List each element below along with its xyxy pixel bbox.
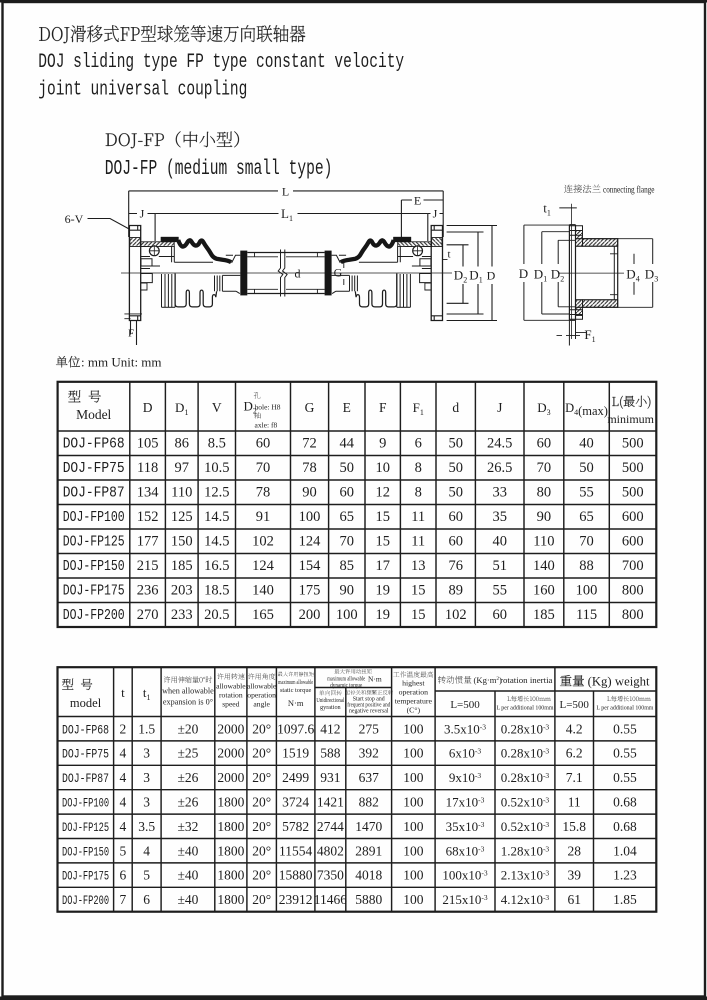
svg-text:20°: 20° xyxy=(252,795,271,810)
svg-text:20°: 20° xyxy=(252,770,271,785)
svg-text:V: V xyxy=(212,400,222,415)
svg-text:4.12x10-3: 4.12x10-3 xyxy=(501,892,550,907)
svg-text:1800: 1800 xyxy=(217,819,244,834)
svg-text:11554: 11554 xyxy=(279,843,312,858)
svg-text:3: 3 xyxy=(143,746,150,761)
svg-text:23912: 23912 xyxy=(279,892,313,907)
svg-text:185: 185 xyxy=(533,607,555,623)
svg-text:7.1: 7.1 xyxy=(566,770,583,785)
svg-text:134: 134 xyxy=(137,484,160,500)
svg-text:J: J xyxy=(140,207,145,221)
svg-text:negative reversal: negative reversal xyxy=(349,709,389,715)
svg-text:joint universal coupling: joint universal coupling xyxy=(38,78,247,101)
svg-text:2891: 2891 xyxy=(355,843,382,858)
svg-text:1800: 1800 xyxy=(217,795,244,810)
svg-text:2499: 2499 xyxy=(282,770,309,785)
svg-text:hole: H8: hole: H8 xyxy=(255,403,281,412)
svg-text:highest: highest xyxy=(402,679,425,688)
svg-text:588: 588 xyxy=(320,746,341,761)
svg-text:233: 233 xyxy=(171,607,193,623)
svg-text:4018: 4018 xyxy=(355,868,382,883)
svg-text:70: 70 xyxy=(537,460,552,476)
svg-text:1519: 1519 xyxy=(282,746,309,761)
svg-text:65: 65 xyxy=(340,509,355,525)
svg-text:6: 6 xyxy=(415,435,422,451)
svg-text:100: 100 xyxy=(336,607,358,623)
svg-text:: mm Unit: mm: : mm Unit: mm xyxy=(81,355,162,370)
svg-text:±25: ±25 xyxy=(177,746,198,761)
svg-text:D: D xyxy=(487,269,496,283)
svg-text:2000: 2000 xyxy=(217,746,244,761)
svg-text:DOJ-FP100: DOJ-FP100 xyxy=(63,510,125,526)
svg-text:105: 105 xyxy=(137,435,159,451)
svg-text:165: 165 xyxy=(252,607,274,623)
svg-text:N·m: N·m xyxy=(368,675,382,684)
svg-text:0.52x10-3: 0.52x10-3 xyxy=(501,795,550,810)
svg-text:60: 60 xyxy=(448,509,463,525)
svg-text:15: 15 xyxy=(375,533,390,549)
svg-text:100: 100 xyxy=(403,721,424,736)
svg-text:700: 700 xyxy=(622,558,644,574)
svg-text:90: 90 xyxy=(302,484,317,500)
svg-text:4: 4 xyxy=(143,843,150,858)
svg-text:0.55: 0.55 xyxy=(613,721,637,736)
svg-text:4: 4 xyxy=(120,770,127,785)
svg-text:19: 19 xyxy=(375,607,390,623)
svg-text:4: 4 xyxy=(120,795,127,810)
svg-text:90: 90 xyxy=(340,582,355,598)
svg-text:1.5: 1.5 xyxy=(138,721,155,736)
svg-text:102: 102 xyxy=(252,533,274,549)
svg-text:26.5: 26.5 xyxy=(487,460,512,476)
svg-text:55: 55 xyxy=(492,582,507,598)
svg-text:1800: 1800 xyxy=(217,868,244,883)
svg-text:70: 70 xyxy=(256,460,271,476)
svg-text:0.55: 0.55 xyxy=(613,746,637,761)
svg-text:19: 19 xyxy=(375,582,390,598)
svg-text:dynamic torque: dynamic torque xyxy=(330,682,362,689)
svg-text:4.2: 4.2 xyxy=(566,721,583,736)
svg-text:600: 600 xyxy=(622,509,644,525)
svg-text:minimum: minimum xyxy=(607,412,654,426)
svg-text:DOJ-FP150: DOJ-FP150 xyxy=(62,845,109,859)
svg-text:8: 8 xyxy=(415,484,422,500)
svg-text:0.55: 0.55 xyxy=(613,770,637,785)
svg-text:when allowable: when allowable xyxy=(162,687,214,696)
svg-text:connecting flange: connecting flange xyxy=(603,184,655,195)
svg-text:DOJ-FP (medium small type): DOJ-FP (medium small type) xyxy=(105,158,333,181)
svg-text:DOJ-FP87: DOJ-FP87 xyxy=(63,485,125,501)
svg-text:70: 70 xyxy=(340,533,355,549)
svg-text:E: E xyxy=(343,400,351,415)
svg-text:frequent positive and: frequent positive and xyxy=(347,702,390,709)
svg-text:DOJ-FP100: DOJ-FP100 xyxy=(62,797,109,811)
svg-text:0.28x10-3: 0.28x10-3 xyxy=(501,770,550,785)
svg-text:15880: 15880 xyxy=(279,868,313,883)
svg-text:expansion is 0°: expansion is 0° xyxy=(163,698,213,707)
svg-text:102: 102 xyxy=(445,607,467,623)
svg-text:DOJ-FP75: DOJ-FP75 xyxy=(63,461,125,477)
svg-text:4: 4 xyxy=(120,819,127,834)
svg-text:8.5: 8.5 xyxy=(208,435,226,451)
svg-text:40: 40 xyxy=(579,435,594,451)
svg-text:DOJ-FP175: DOJ-FP175 xyxy=(63,583,125,599)
svg-text:55: 55 xyxy=(579,484,594,500)
svg-text:DOJ sliding type FP type const: DOJ sliding type FP type constant veloci… xyxy=(38,51,404,74)
svg-text:J: J xyxy=(433,207,438,221)
svg-text:100: 100 xyxy=(403,843,424,858)
svg-text:D: D xyxy=(143,400,153,415)
svg-text:78: 78 xyxy=(302,460,317,476)
svg-text:operation: operation xyxy=(247,691,276,700)
svg-text:1800: 1800 xyxy=(217,892,244,907)
svg-text:11: 11 xyxy=(568,795,581,810)
svg-text:DOJ-FP87: DOJ-FP87 xyxy=(62,772,109,786)
svg-text:11466: 11466 xyxy=(314,892,347,907)
svg-text:125: 125 xyxy=(171,509,193,525)
svg-text:50: 50 xyxy=(340,460,355,476)
svg-text:3724: 3724 xyxy=(282,795,309,810)
svg-text:11: 11 xyxy=(411,533,425,549)
svg-text:6-V: 6-V xyxy=(65,212,84,226)
svg-text:110: 110 xyxy=(533,533,554,549)
svg-text:2: 2 xyxy=(120,721,127,736)
svg-text:110: 110 xyxy=(171,484,192,500)
svg-text:5880: 5880 xyxy=(355,892,382,907)
svg-text:DOJ-FP75: DOJ-FP75 xyxy=(62,748,109,762)
svg-text:89: 89 xyxy=(448,582,463,598)
svg-text:15.8: 15.8 xyxy=(562,819,586,834)
svg-text:17: 17 xyxy=(375,558,390,574)
svg-text:931: 931 xyxy=(320,770,340,785)
svg-text:D: D xyxy=(519,266,528,281)
svg-text:DOJ-FP150: DOJ-FP150 xyxy=(63,559,125,575)
svg-text:20°: 20° xyxy=(252,843,271,858)
svg-text:14.5: 14.5 xyxy=(204,509,229,525)
svg-text:axle: f8: axle: f8 xyxy=(255,421,278,430)
svg-text:51: 51 xyxy=(492,558,507,574)
svg-text:gyration: gyration xyxy=(320,704,341,711)
svg-text:60: 60 xyxy=(492,607,507,623)
svg-text:operation: operation xyxy=(399,688,429,697)
svg-text:7350: 7350 xyxy=(317,868,344,883)
svg-text:d: d xyxy=(452,400,459,415)
svg-text:882: 882 xyxy=(359,795,379,810)
svg-text:50: 50 xyxy=(448,484,463,500)
svg-text:20°: 20° xyxy=(252,819,271,834)
svg-text:13: 13 xyxy=(411,558,426,574)
svg-text:100: 100 xyxy=(299,509,321,525)
svg-text:200: 200 xyxy=(299,607,321,623)
svg-text:±20: ±20 xyxy=(177,721,198,736)
svg-text:215x10-3: 215x10-3 xyxy=(442,892,487,907)
svg-text:76: 76 xyxy=(448,558,463,574)
svg-text:215: 215 xyxy=(137,558,159,574)
svg-text:DOJ-FP68: DOJ-FP68 xyxy=(62,723,109,737)
svg-text:100: 100 xyxy=(403,770,424,785)
svg-text:DOJ-FP200: DOJ-FP200 xyxy=(62,894,109,908)
svg-text:rotation inertia: rotation inertia xyxy=(500,675,553,685)
svg-text:L=500: L=500 xyxy=(559,699,589,711)
svg-text:50: 50 xyxy=(448,435,463,451)
svg-text:5: 5 xyxy=(120,843,127,858)
svg-text:3: 3 xyxy=(143,795,150,810)
svg-text:1421: 1421 xyxy=(317,795,344,810)
svg-text:L: L xyxy=(282,184,289,198)
svg-text:100: 100 xyxy=(403,819,424,834)
svg-text:97: 97 xyxy=(175,460,190,476)
svg-text:DOJ-FP125: DOJ-FP125 xyxy=(63,534,125,550)
svg-text:500: 500 xyxy=(622,435,644,451)
svg-text:270: 270 xyxy=(137,607,159,623)
svg-text:85: 85 xyxy=(340,558,355,574)
svg-text:185: 185 xyxy=(171,558,193,574)
svg-text:±26: ±26 xyxy=(177,795,198,810)
svg-text:F: F xyxy=(379,400,387,415)
svg-text:20°: 20° xyxy=(252,746,271,761)
svg-text:(Kg) weight: (Kg) weight xyxy=(588,675,651,689)
svg-text:175: 175 xyxy=(299,582,321,598)
svg-text:15: 15 xyxy=(375,509,390,525)
svg-text:100: 100 xyxy=(403,746,424,761)
svg-text:118: 118 xyxy=(137,460,158,476)
svg-text:15: 15 xyxy=(411,607,426,623)
svg-text:N·m: N·m xyxy=(288,698,304,708)
svg-text:100: 100 xyxy=(403,795,424,810)
svg-text:0.52x10-3: 0.52x10-3 xyxy=(501,819,550,834)
svg-text:±40: ±40 xyxy=(177,843,198,858)
svg-text:10: 10 xyxy=(375,460,390,476)
svg-text:637: 637 xyxy=(359,770,380,785)
svg-text:500: 500 xyxy=(622,484,644,500)
svg-text:600: 600 xyxy=(622,533,644,549)
svg-text:temperature: temperature xyxy=(395,697,433,706)
svg-text:G: G xyxy=(334,266,343,280)
svg-text:8: 8 xyxy=(415,460,422,476)
svg-text:60: 60 xyxy=(537,435,552,451)
svg-text:DOJ-FP125: DOJ-FP125 xyxy=(62,821,109,835)
svg-text:44: 44 xyxy=(340,435,355,451)
svg-text:L=500: L=500 xyxy=(450,699,480,711)
svg-text:10.5: 10.5 xyxy=(204,460,229,476)
svg-text:E: E xyxy=(414,193,421,207)
svg-text:800: 800 xyxy=(622,607,644,623)
svg-text:33: 33 xyxy=(492,484,507,500)
svg-text:18.5: 18.5 xyxy=(204,582,229,598)
svg-text:1.04: 1.04 xyxy=(613,843,637,858)
svg-text:20°: 20° xyxy=(252,721,271,736)
svg-text:12: 12 xyxy=(375,484,390,500)
svg-text:88: 88 xyxy=(579,558,594,574)
svg-text:G: G xyxy=(305,400,315,415)
svg-text:F: F xyxy=(128,328,134,340)
svg-text:d: d xyxy=(295,267,301,281)
svg-text:1800: 1800 xyxy=(217,843,244,858)
svg-text:150: 150 xyxy=(171,533,193,549)
svg-text:70: 70 xyxy=(579,533,594,549)
svg-text:203: 203 xyxy=(171,582,193,598)
svg-text:1097.6: 1097.6 xyxy=(277,721,314,736)
svg-text:2744: 2744 xyxy=(317,819,344,834)
svg-text:±40: ±40 xyxy=(177,868,198,883)
svg-text:65: 65 xyxy=(579,509,594,525)
svg-text:speed: speed xyxy=(222,700,239,709)
svg-text:9: 9 xyxy=(379,435,386,451)
svg-text:model: model xyxy=(70,696,102,710)
svg-text:100: 100 xyxy=(403,892,424,907)
svg-text:J: J xyxy=(497,400,502,415)
svg-text:275: 275 xyxy=(359,721,380,736)
svg-text:124: 124 xyxy=(299,533,322,549)
svg-text:61: 61 xyxy=(567,892,581,907)
svg-text:DOJ-FP200: DOJ-FP200 xyxy=(63,608,125,624)
svg-text:152: 152 xyxy=(137,509,159,525)
svg-text:L per additional 100mm: L per additional 100mm xyxy=(496,705,553,712)
svg-text:1470: 1470 xyxy=(355,819,382,834)
svg-text:35: 35 xyxy=(492,509,507,525)
svg-text:39: 39 xyxy=(567,868,581,883)
svg-text:1.23: 1.23 xyxy=(613,868,637,883)
svg-text:1.85: 1.85 xyxy=(613,892,637,907)
svg-text:allowable: allowable xyxy=(216,682,246,691)
svg-text:±40: ±40 xyxy=(177,892,198,907)
svg-text:177: 177 xyxy=(137,533,159,549)
svg-text:5782: 5782 xyxy=(282,819,309,834)
svg-text:6: 6 xyxy=(120,868,127,883)
svg-text:140: 140 xyxy=(533,558,555,574)
svg-text:±32: ±32 xyxy=(177,819,198,834)
svg-text:rotation: rotation xyxy=(219,691,243,700)
svg-text:154: 154 xyxy=(299,558,322,574)
svg-text:60: 60 xyxy=(256,435,271,451)
svg-text:412: 412 xyxy=(320,721,340,736)
svg-text:DOJ-FP68: DOJ-FP68 xyxy=(63,436,125,452)
svg-text:static torque: static torque xyxy=(280,687,312,694)
svg-text:4802: 4802 xyxy=(317,843,344,858)
svg-text:allowable: allowable xyxy=(247,682,277,691)
svg-text:angle: angle xyxy=(253,700,270,709)
svg-text:Model: Model xyxy=(76,407,111,422)
svg-text:20°: 20° xyxy=(252,892,271,907)
svg-text:24.5: 24.5 xyxy=(487,435,512,451)
svg-text:Unidirectional: Unidirectional xyxy=(316,697,344,704)
svg-text:124: 124 xyxy=(252,558,275,574)
svg-text:50: 50 xyxy=(579,460,594,476)
svg-text:20.5: 20.5 xyxy=(204,607,229,623)
svg-text:90: 90 xyxy=(537,509,552,525)
svg-text:50: 50 xyxy=(448,460,463,476)
svg-text:5: 5 xyxy=(143,868,150,883)
svg-text:72: 72 xyxy=(302,435,317,451)
svg-text:2.13x10-3: 2.13x10-3 xyxy=(501,868,550,883)
svg-text:78: 78 xyxy=(256,484,271,500)
svg-text:160: 160 xyxy=(533,582,555,598)
svg-text:236: 236 xyxy=(137,582,159,598)
svg-text:4: 4 xyxy=(120,746,127,761)
svg-text:800: 800 xyxy=(622,582,644,598)
svg-text:20°: 20° xyxy=(252,868,271,883)
svg-text:1.28x10-3: 1.28x10-3 xyxy=(501,843,550,858)
svg-text:60: 60 xyxy=(340,484,355,500)
svg-text:100: 100 xyxy=(576,582,598,598)
svg-text:0.68: 0.68 xyxy=(613,819,637,834)
svg-text:maximum allowable: maximum allowable xyxy=(278,679,313,686)
svg-text:0.28x10-3: 0.28x10-3 xyxy=(501,721,550,736)
svg-text:±26: ±26 xyxy=(177,770,198,785)
svg-text:28: 28 xyxy=(567,843,581,858)
svg-text:11: 11 xyxy=(411,509,425,525)
svg-text:15: 15 xyxy=(411,582,426,598)
svg-text:60: 60 xyxy=(448,533,463,549)
svg-text:7: 7 xyxy=(120,892,127,907)
svg-text:80: 80 xyxy=(537,484,552,500)
svg-text:t: t xyxy=(447,249,450,261)
svg-text:16.5: 16.5 xyxy=(204,558,229,574)
svg-text:L per additional 100mm: L per additional 100mm xyxy=(596,705,653,712)
svg-text:12.5: 12.5 xyxy=(204,484,229,500)
svg-text:3: 3 xyxy=(143,770,150,785)
svg-text:115: 115 xyxy=(576,607,597,623)
svg-text:392: 392 xyxy=(359,746,379,761)
svg-text:500: 500 xyxy=(622,460,644,476)
svg-text:6.2: 6.2 xyxy=(566,746,583,761)
svg-text:91: 91 xyxy=(256,509,271,525)
svg-text:t: t xyxy=(121,685,125,700)
svg-text:3.5: 3.5 xyxy=(138,819,155,834)
svg-text:DOJ-FP175: DOJ-FP175 xyxy=(62,870,109,884)
svg-text:2000: 2000 xyxy=(217,770,244,785)
svg-text:100: 100 xyxy=(403,868,424,883)
svg-text:(C°): (C°) xyxy=(407,706,421,715)
svg-text:0.28x10-3: 0.28x10-3 xyxy=(501,746,550,761)
svg-text:0.68: 0.68 xyxy=(613,795,637,810)
svg-text:40: 40 xyxy=(492,533,507,549)
svg-text:2000: 2000 xyxy=(217,721,244,736)
svg-text:100x10-3: 100x10-3 xyxy=(442,868,487,883)
svg-text:6: 6 xyxy=(143,892,150,907)
svg-text:140: 140 xyxy=(252,582,274,598)
svg-text:14.5: 14.5 xyxy=(204,533,229,549)
svg-text:86: 86 xyxy=(175,435,190,451)
